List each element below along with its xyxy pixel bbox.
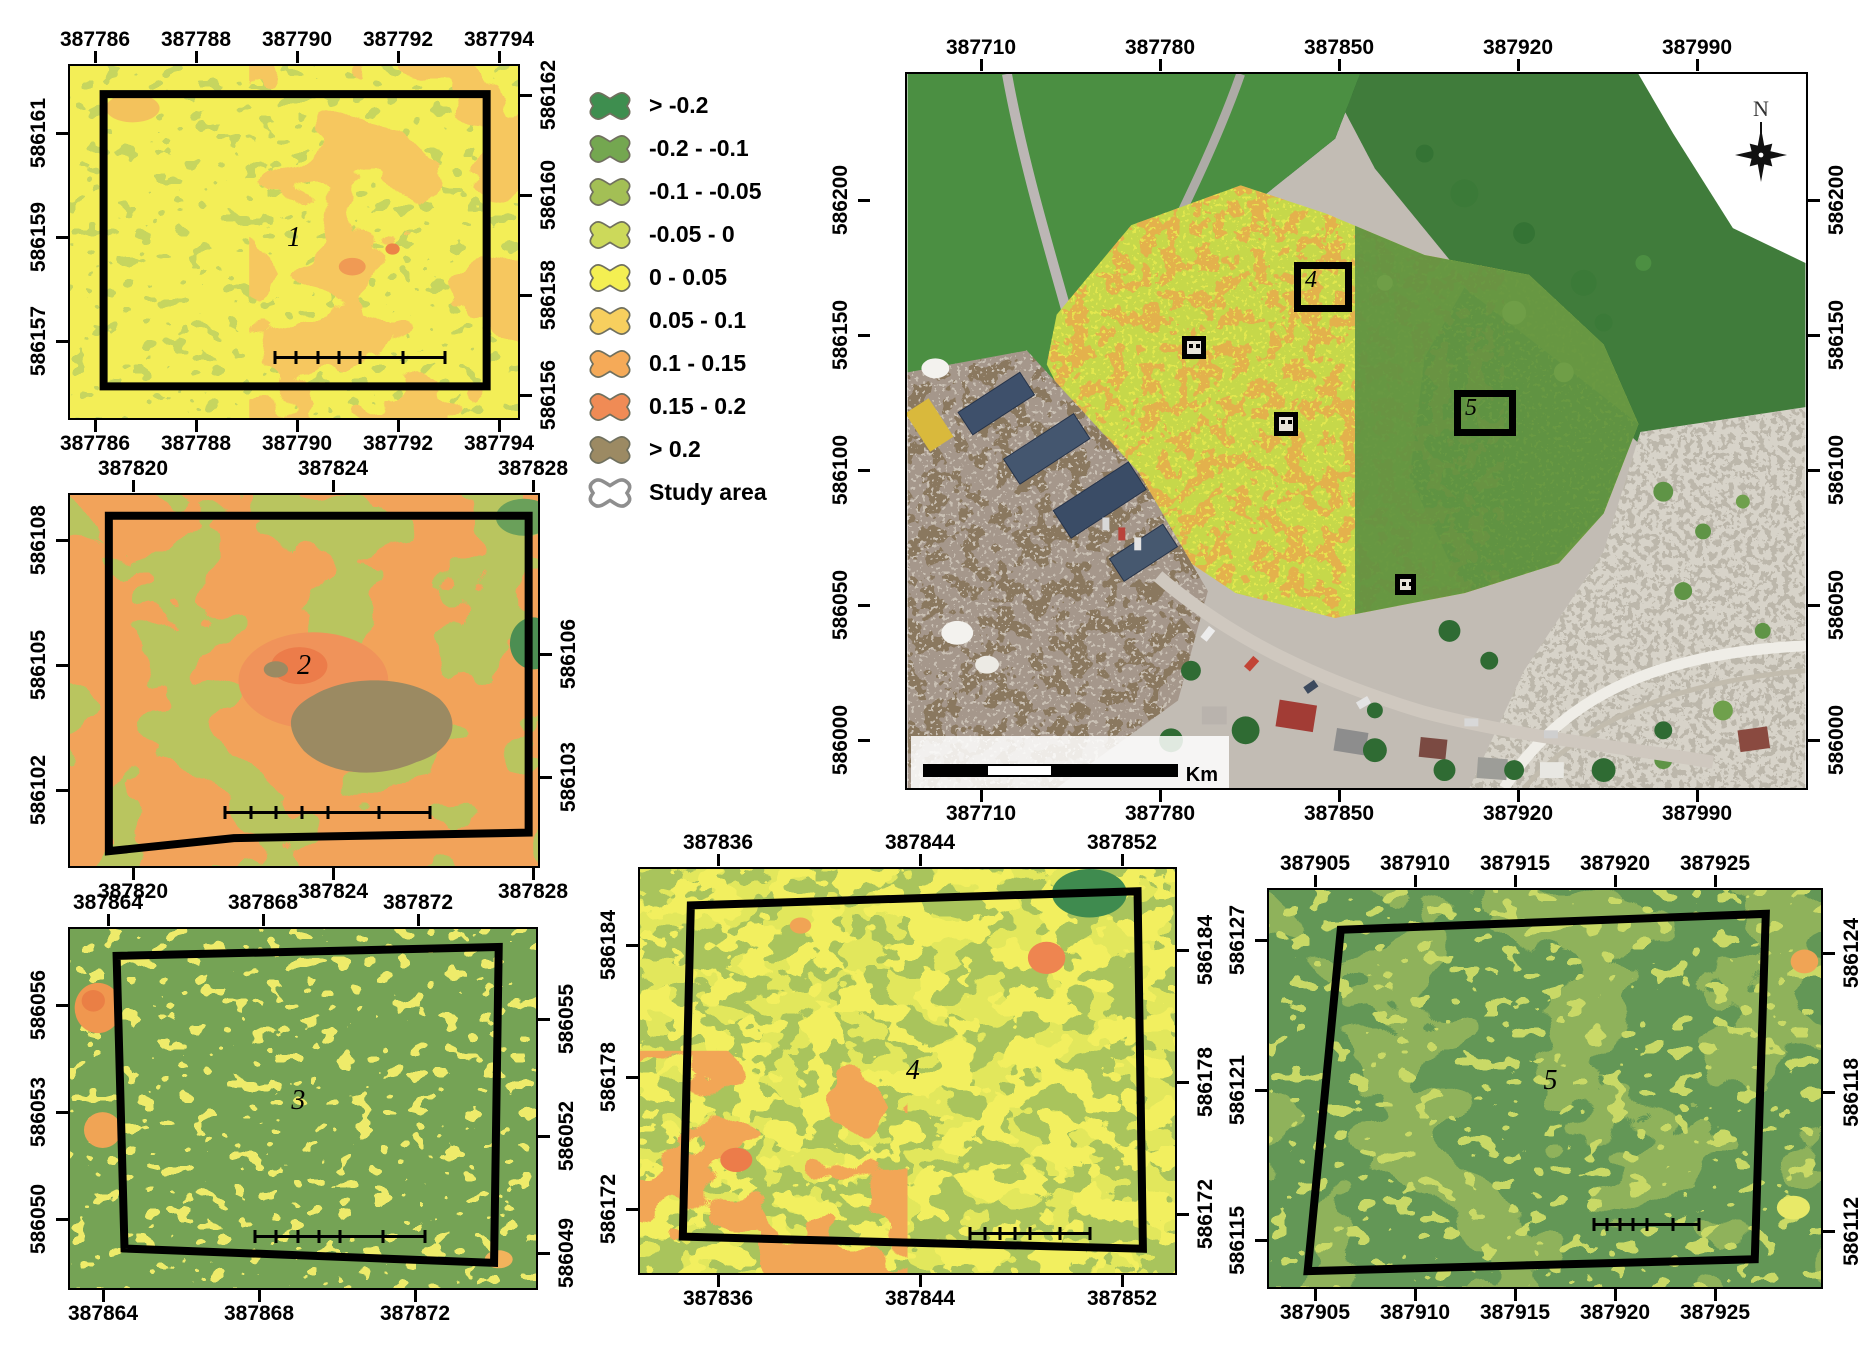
axis-tick-mark xyxy=(1514,1289,1517,1301)
map5-axis-top: 387905387910387915387920387925 xyxy=(1315,852,1715,887)
axis-tick-label: 586052 xyxy=(555,1101,579,1171)
legend: > -0.2 -0.2 - -0.1 -0.1 - -0.05 -0.05 - … xyxy=(585,78,835,514)
scalebar-line xyxy=(225,811,430,814)
axis-tick-mark xyxy=(538,1252,550,1255)
axis-tick-label: 586102 xyxy=(27,755,51,825)
axis-tick-label: 586172 xyxy=(597,1174,621,1244)
axis-tick-mark xyxy=(94,420,97,432)
axis-tick-label: 586156 xyxy=(537,360,561,430)
axis-tick-label: 387844 xyxy=(885,831,955,854)
axis-tick-mark xyxy=(858,334,870,337)
axis-tick-label: 586049 xyxy=(555,1218,579,1288)
axis-tick-label: 387864 xyxy=(68,1302,138,1325)
axis-tick-mark xyxy=(332,480,335,492)
axis-tick: 586156 xyxy=(520,370,576,420)
axis-tick: 586100 xyxy=(1808,445,1864,495)
map5-axis-left: 586127586121586115 xyxy=(1211,915,1267,1265)
north-arrow: N xyxy=(1729,96,1793,193)
axis-tick: 586159 xyxy=(12,212,68,262)
axis-tick-label: 387788 xyxy=(161,28,231,51)
axis-tick-label: 387794 xyxy=(464,28,534,51)
main-scalebar-unit: Km xyxy=(1186,764,1218,787)
axis-tick-label: 387790 xyxy=(262,432,332,455)
map5-axis-bottom: 387905387910387915387920387925 xyxy=(1315,1289,1715,1324)
tent xyxy=(921,358,949,378)
map3-plot: 3 xyxy=(68,927,538,1290)
map3-axis-top: 387864387868387872 xyxy=(108,891,418,926)
map3-number: 3 xyxy=(291,1085,305,1117)
axis-tick-label: 387788 xyxy=(161,432,231,455)
axis-tick-label: 387872 xyxy=(380,1302,450,1325)
axis-tick-mark xyxy=(262,914,265,926)
axis-tick-label: 586112 xyxy=(1840,1197,1864,1266)
axis-tick: 586150 xyxy=(814,310,870,360)
axis-tick-label: 387852 xyxy=(1087,831,1157,854)
axis-tick: 586106 xyxy=(540,629,596,679)
map5-scalebar xyxy=(1594,1195,1699,1226)
axis-tick-mark xyxy=(1314,1289,1317,1301)
axis-tick-mark xyxy=(132,480,135,492)
axis-tick-label: 586053 xyxy=(27,1077,51,1147)
axis-tick-label: 586158 xyxy=(537,260,561,330)
axis-tick-label: 586108 xyxy=(27,505,51,575)
map4-scalebar xyxy=(970,1204,1090,1235)
map2-plot: 2 xyxy=(68,493,540,868)
axis-tick-label: 387794 xyxy=(464,432,534,455)
axis-tick-label: 586050 xyxy=(829,570,853,640)
axis-tick-mark xyxy=(1808,199,1820,202)
legend-class-swatch-icon xyxy=(585,390,635,424)
axis-tick-label: 586103 xyxy=(557,742,581,812)
axis-tick-mark xyxy=(532,480,535,492)
axis-tick: 586162 xyxy=(520,70,576,120)
axis-tick-label: 387990 xyxy=(1662,802,1732,825)
scalebar-line xyxy=(255,1235,425,1238)
axis-tick-label: 387915 xyxy=(1480,1301,1550,1324)
axis-tick-mark xyxy=(1714,875,1717,887)
axis-tick: 586172 xyxy=(582,1184,638,1234)
axis-tick-mark xyxy=(1614,1289,1617,1301)
axis-tick-label: 586200 xyxy=(829,165,853,235)
legend-item-label: -0.05 - 0 xyxy=(649,221,735,248)
legend-item-label: > -0.2 xyxy=(649,92,708,119)
axis-tick: 586160 xyxy=(520,170,576,220)
axis-tick-label: 387828 xyxy=(498,457,568,480)
axis-tick-mark xyxy=(1159,59,1162,71)
axis-tick-mark xyxy=(56,1004,68,1007)
scalebar-line xyxy=(275,356,445,359)
axis-tick-mark xyxy=(520,194,532,197)
axis-tick-label: 586055 xyxy=(555,984,579,1054)
axis-tick-label: 586162 xyxy=(537,60,561,130)
axis-tick-mark xyxy=(1808,739,1820,742)
axis-tick-label: 586200 xyxy=(1825,165,1849,235)
north-arrow-label: N xyxy=(1729,96,1793,122)
map4-axis-top: 387836387844387852 xyxy=(718,831,1122,866)
axis-tick-label: 387710 xyxy=(946,36,1016,59)
axis-tick-mark xyxy=(102,1290,105,1302)
axis-tick-mark xyxy=(858,469,870,472)
axis-tick-label: 586000 xyxy=(829,705,853,775)
map2-number: 2 xyxy=(297,650,311,682)
axis-tick-mark xyxy=(296,51,299,63)
legend-item: Study area xyxy=(585,471,835,514)
axis-tick-label: 586178 xyxy=(597,1042,621,1112)
legend-class-swatch-icon xyxy=(585,433,635,467)
axis-tick-mark xyxy=(1696,59,1699,71)
legend-class-swatch-icon xyxy=(585,89,635,123)
axis-tick-mark xyxy=(56,236,68,239)
legend-item: -0.2 - -0.1 xyxy=(585,127,835,170)
axis-tick-label: 586100 xyxy=(829,435,853,505)
axis-tick-label: 387905 xyxy=(1280,852,1350,875)
axis-tick: 586050 xyxy=(12,1194,68,1244)
legend-class-swatch-icon xyxy=(585,347,635,381)
legend-item: > 0.2 xyxy=(585,428,835,471)
axis-tick-label: 586100 xyxy=(1825,435,1849,505)
axis-tick-mark xyxy=(858,739,870,742)
scalebar-labels xyxy=(275,328,445,353)
axis-tick-label: 387850 xyxy=(1304,36,1374,59)
axis-tick-mark xyxy=(56,340,68,343)
axis-tick-mark xyxy=(1614,875,1617,887)
scalebar-line xyxy=(970,1232,1090,1235)
axis-tick-mark xyxy=(498,420,501,432)
axis-tick-mark xyxy=(195,51,198,63)
main-scalebar-bar xyxy=(923,764,1178,777)
axis-tick: 586053 xyxy=(12,1087,68,1137)
axis-tick-label: 586160 xyxy=(537,160,561,230)
axis-tick: 586200 xyxy=(1808,175,1864,225)
axis-tick-mark xyxy=(332,868,335,880)
axis-tick-mark xyxy=(417,914,420,926)
legend-item-label: 0 - 0.05 xyxy=(649,264,727,291)
axis-tick-label: 586150 xyxy=(1825,300,1849,370)
axis-tick-mark xyxy=(717,854,720,866)
axis-tick-label: 387820 xyxy=(98,457,168,480)
axis-tick: 586000 xyxy=(1808,715,1864,765)
axis-tick-label: 586000 xyxy=(1825,705,1849,775)
legend-class-swatch-icon xyxy=(585,261,635,295)
axis-tick-label: 586056 xyxy=(27,970,51,1040)
axis-tick-mark xyxy=(1177,949,1189,952)
axis-tick-label: 387792 xyxy=(363,28,433,51)
axis-tick-label: 586121 xyxy=(1226,1055,1250,1125)
axis-tick: 586150 xyxy=(1808,310,1864,360)
axis-tick-mark xyxy=(858,604,870,607)
axis-tick: 586050 xyxy=(814,580,870,630)
map5-plot: 5 xyxy=(1267,888,1823,1289)
legend-item: 0 - 0.05 xyxy=(585,256,835,299)
main-axis-left: 586200586150586100586050586000 xyxy=(814,175,870,765)
axis-tick-mark xyxy=(1177,1213,1189,1216)
main-marker-area4: 4 xyxy=(1294,262,1352,312)
legend-class-swatch-icon xyxy=(585,175,635,209)
axis-tick-mark xyxy=(1823,952,1835,955)
axis-tick-mark xyxy=(1255,1089,1267,1092)
main-scalebar: Km xyxy=(911,736,1229,790)
main-axis-top: 387710387780387850387920387990 xyxy=(981,36,1697,71)
axis-tick-label: 387710 xyxy=(946,802,1016,825)
axis-tick-mark xyxy=(1714,1289,1717,1301)
axis-tick-mark xyxy=(1517,59,1520,71)
main-marker-area4-label: 4 xyxy=(1305,267,1317,294)
axis-tick-label: 387852 xyxy=(1087,1287,1157,1310)
axis-tick: 586157 xyxy=(12,316,68,366)
map3-axis-left: 586056586053586050 xyxy=(12,980,68,1244)
axis-tick-label: 586105 xyxy=(27,630,51,700)
scalebar-labels xyxy=(970,1204,1090,1229)
axis-tick-label: 387925 xyxy=(1680,1301,1750,1324)
axis-tick-label: 387786 xyxy=(60,28,130,51)
axis-tick-mark xyxy=(532,868,535,880)
axis-tick-mark xyxy=(498,51,501,63)
axis-tick-label: 387868 xyxy=(224,1302,294,1325)
axis-tick-mark xyxy=(1159,790,1162,802)
legend-item: -0.05 - 0 xyxy=(585,213,835,256)
axis-tick: 586100 xyxy=(814,445,870,495)
axis-tick-label: 387868 xyxy=(228,891,298,914)
axis-tick-label: 387915 xyxy=(1480,852,1550,875)
axis-tick: 586050 xyxy=(1808,580,1864,630)
axis-tick-mark xyxy=(1414,1289,1417,1301)
axis-tick: 586118 xyxy=(1823,1067,1873,1117)
tent xyxy=(975,656,999,674)
legend-item: -0.1 - -0.05 xyxy=(585,170,835,213)
axis-tick-label: 387828 xyxy=(498,880,568,903)
axis-tick: 586108 xyxy=(12,515,68,565)
axis-tick-label: 387920 xyxy=(1580,1301,1650,1324)
axis-tick-mark xyxy=(538,1018,550,1021)
legend-item: 0.05 - 0.1 xyxy=(585,299,835,342)
axis-tick-mark xyxy=(980,790,983,802)
legend-item-label: 0.05 - 0.1 xyxy=(649,307,746,334)
map2-axis-right: 586106586103 xyxy=(540,629,596,802)
axis-tick-label: 586106 xyxy=(557,619,581,689)
axis-tick-mark xyxy=(626,1076,638,1079)
axis-tick-label: 586184 xyxy=(597,910,621,980)
axis-tick: 586127 xyxy=(1211,915,1267,965)
legend-item: > -0.2 xyxy=(585,84,835,127)
axis-tick: 586103 xyxy=(540,752,596,802)
axis-tick-mark xyxy=(1255,1239,1267,1242)
map3-scalebar xyxy=(255,1207,425,1238)
axis-tick: 586112 xyxy=(1823,1206,1873,1256)
axis-tick-label: 387850 xyxy=(1304,802,1374,825)
axis-tick-mark xyxy=(1255,939,1267,942)
legend-class-swatch-icon xyxy=(585,218,635,252)
axis-tick-label: 586050 xyxy=(27,1184,51,1254)
axis-tick-mark xyxy=(1121,854,1124,866)
axis-tick-label: 586124 xyxy=(1840,918,1864,988)
main-marker-area1 xyxy=(1182,336,1206,359)
main-marker-area5: 5 xyxy=(1454,390,1516,436)
axis-tick: 586124 xyxy=(1823,928,1873,978)
scalebar-labels xyxy=(225,783,430,808)
axis-tick-mark xyxy=(540,776,552,779)
axis-tick-label: 387925 xyxy=(1680,852,1750,875)
axis-tick-mark xyxy=(56,1111,68,1114)
axis-tick-label: 387780 xyxy=(1125,36,1195,59)
compass-rose-icon xyxy=(1729,122,1793,188)
axis-tick-mark xyxy=(980,59,983,71)
axis-tick-label: 387780 xyxy=(1125,802,1195,825)
scalebar-labels xyxy=(255,1207,425,1232)
axis-tick: 586115 xyxy=(1211,1215,1267,1265)
map1-scalebar xyxy=(275,328,445,359)
scalebar-labels xyxy=(1594,1195,1699,1220)
axis-tick-mark xyxy=(626,944,638,947)
axis-tick-label: 387905 xyxy=(1280,1301,1350,1324)
axis-tick-mark xyxy=(1121,1275,1124,1287)
axis-tick-mark xyxy=(296,420,299,432)
map1-axis-right: 586162586160586158586156 xyxy=(520,70,576,420)
axis-tick-mark xyxy=(1514,875,1517,887)
legend-items: > -0.2 -0.2 - -0.1 -0.1 - -0.05 -0.05 - … xyxy=(585,84,835,514)
axis-tick-mark xyxy=(397,51,400,63)
axis-tick-label: 387836 xyxy=(683,1287,753,1310)
axis-tick-mark xyxy=(56,1218,68,1221)
main-marker-area5-label: 5 xyxy=(1465,395,1477,422)
axis-tick-label: 586115 xyxy=(1226,1206,1250,1275)
axis-tick: 586161 xyxy=(12,108,68,158)
map4-axis-bottom: 387836387844387852 xyxy=(718,1275,1122,1310)
axis-tick-label: 387792 xyxy=(363,432,433,455)
axis-tick-mark xyxy=(195,420,198,432)
legend-item-label: -0.1 - -0.05 xyxy=(649,178,762,205)
axis-tick-mark xyxy=(414,1290,417,1302)
axis-tick-mark xyxy=(1414,875,1417,887)
map4-number: 4 xyxy=(906,1055,920,1087)
axis-tick-mark xyxy=(258,1290,261,1302)
axis-tick-label: 586159 xyxy=(27,202,51,272)
axis-tick: 586056 xyxy=(12,980,68,1030)
main-marker-area2 xyxy=(1274,412,1298,436)
axis-tick-label: 387910 xyxy=(1380,1301,1450,1324)
axis-tick: 586178 xyxy=(582,1052,638,1102)
axis-tick-label: 387990 xyxy=(1662,36,1732,59)
axis-tick-label: 387824 xyxy=(298,457,368,480)
axis-tick-mark xyxy=(1696,790,1699,802)
axis-tick-mark xyxy=(1338,790,1341,802)
axis-tick: 586158 xyxy=(520,270,576,320)
axis-tick-mark xyxy=(1338,59,1341,71)
axis-tick-mark xyxy=(1517,790,1520,802)
axis-tick-label: 586118 xyxy=(1840,1058,1864,1127)
axis-tick-mark xyxy=(56,664,68,667)
axis-tick: 586121 xyxy=(1211,1065,1267,1115)
axis-tick-label: 586050 xyxy=(1825,570,1849,640)
axis-tick-mark xyxy=(56,132,68,135)
axis-tick: 586000 xyxy=(814,715,870,765)
axis-tick-label: 586150 xyxy=(829,300,853,370)
axis-tick-mark xyxy=(397,420,400,432)
axis-tick: 586184 xyxy=(582,920,638,970)
axis-tick-mark xyxy=(1808,469,1820,472)
axis-tick-mark xyxy=(1177,1081,1189,1084)
axis-tick-mark xyxy=(538,1135,550,1138)
legend-item-label: -0.2 - -0.1 xyxy=(649,135,749,162)
map2-scalebar xyxy=(225,783,430,814)
map1-axis-top: 387786387788387790387792387794 xyxy=(95,28,499,63)
legend-class-swatch-icon xyxy=(585,304,635,338)
axis-tick-mark xyxy=(94,51,97,63)
axis-tick-label: 387920 xyxy=(1483,36,1553,59)
map2-axis-left: 586108586105586102 xyxy=(12,515,68,815)
axis-tick-mark xyxy=(919,854,922,866)
axis-tick-label: 586161 xyxy=(27,98,51,168)
axis-tick: 586105 xyxy=(12,640,68,690)
axis-tick-label: 387864 xyxy=(73,891,143,914)
map4-plot: 4 xyxy=(638,867,1177,1275)
axis-tick-mark xyxy=(919,1275,922,1287)
main-map-plot: 4 5 N xyxy=(905,72,1808,790)
map3-axis-bottom: 387864387868387872 xyxy=(103,1290,415,1325)
axis-tick-mark xyxy=(107,914,110,926)
tent xyxy=(941,621,973,645)
axis-tick-mark xyxy=(520,94,532,97)
axis-tick: 586102 xyxy=(12,765,68,815)
axis-tick-label: 387790 xyxy=(262,28,332,51)
axis-tick-label: 387872 xyxy=(383,891,453,914)
axis-tick: 586049 xyxy=(538,1228,594,1278)
legend-class-swatch-icon xyxy=(585,476,635,510)
main-axis-right: 586200586150586100586050586000 xyxy=(1808,175,1864,765)
axis-tick: 586200 xyxy=(814,175,870,225)
orthophoto xyxy=(907,74,1806,788)
legend-item-label: 0.1 - 0.15 xyxy=(649,350,746,377)
axis-tick-label: 387920 xyxy=(1580,852,1650,875)
axis-tick-mark xyxy=(1314,875,1317,887)
axis-tick-label: 387910 xyxy=(1380,852,1450,875)
main-axis-bottom: 387710387780387850387920387990 xyxy=(981,790,1697,825)
legend-class-swatch-icon xyxy=(585,132,635,166)
axis-tick-mark xyxy=(1808,334,1820,337)
legend-item: 0.1 - 0.15 xyxy=(585,342,835,385)
map4-axis-left: 586184586178586172 xyxy=(582,920,638,1234)
axis-tick-mark xyxy=(132,868,135,880)
map1-axis-left: 586161586159586157 xyxy=(12,108,68,366)
figure-surface-movement: > -0.2 -0.2 - -0.1 -0.1 - -0.05 -0.05 - … xyxy=(0,0,1873,1346)
scalebar-line xyxy=(1594,1223,1699,1226)
axis-tick-mark xyxy=(626,1208,638,1211)
axis-tick-mark xyxy=(1808,604,1820,607)
axis-tick-mark xyxy=(717,1275,720,1287)
legend-item-label: > 0.2 xyxy=(649,436,701,463)
axis-tick-mark xyxy=(56,539,68,542)
main-marker-area3 xyxy=(1395,574,1416,595)
axis-tick-mark xyxy=(56,789,68,792)
axis-tick-label: 387844 xyxy=(885,1287,955,1310)
legend-item: 0.15 - 0.2 xyxy=(585,385,835,428)
axis-tick-label: 387836 xyxy=(683,831,753,854)
axis-tick-label: 586127 xyxy=(1226,905,1250,975)
axis-tick-mark xyxy=(1823,1230,1835,1233)
axis-tick-mark xyxy=(540,653,552,656)
axis-tick-label: 387920 xyxy=(1483,802,1553,825)
axis-tick-mark xyxy=(858,199,870,202)
map1-number: 1 xyxy=(287,222,301,254)
axis-tick-label: 387786 xyxy=(60,432,130,455)
map1-plot: 1 xyxy=(68,64,520,420)
map1-axis-bottom: 387786387788387790387792387794 xyxy=(95,420,499,455)
map5-number: 5 xyxy=(1544,1065,1558,1097)
legend-item-label: 0.15 - 0.2 xyxy=(649,393,746,420)
legend-item-label: Study area xyxy=(649,479,767,506)
axis-tick-mark xyxy=(520,394,532,397)
map2-axis-top: 387820387824387828 xyxy=(133,457,533,492)
main-scalebar-labels xyxy=(923,738,1178,762)
